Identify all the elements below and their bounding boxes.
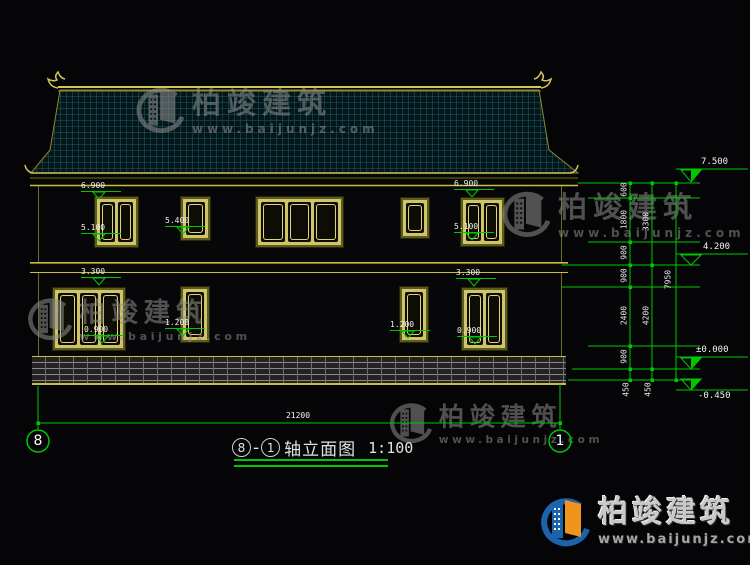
title-axis-right: 1 <box>261 438 280 457</box>
title-label: 轴立面图 <box>284 435 356 460</box>
axis-bubble-8: 8 <box>29 433 47 449</box>
elevation-marker-value: ±0.000 <box>696 345 729 355</box>
title-underline <box>234 459 388 467</box>
elevation-label: 3.300 <box>456 268 496 287</box>
elevation-label: 5.100 <box>81 223 121 242</box>
elevation-drawing-canvas: 6.9005.1005.4006.9005.1003.3000.9001.200… <box>0 0 750 565</box>
brand-logo-url: www.baijunjz.com <box>598 532 750 547</box>
dimension-label: 7950 <box>664 258 673 302</box>
elevation-label: 1.200 <box>165 318 205 337</box>
dimension-label: 4200 <box>642 294 651 338</box>
elevation-label: 0.900 <box>457 326 497 345</box>
drawing-title: 8 - 1 轴立面图 1:100 <box>232 435 413 460</box>
title-axis-left: 8 <box>232 438 251 457</box>
elevation-label: 6.900 <box>81 181 121 200</box>
dimension-label: 3300 <box>642 200 651 244</box>
dimension-label: 900 <box>620 254 629 298</box>
overall-width-dimension: 21200 <box>270 411 326 420</box>
elevation-label: 1.200 <box>390 320 430 339</box>
dimension-label: 450 <box>622 368 631 412</box>
elevation-marker-value: 4.200 <box>703 242 730 252</box>
brand-logo: 柏竣建筑 www.baijunjz.com <box>536 492 750 552</box>
axis-bubble-1: 1 <box>551 433 569 449</box>
brand-logo-icon <box>536 492 590 552</box>
elevation-label: 6.900 <box>454 179 494 198</box>
dimension-label: 450 <box>644 368 653 412</box>
elevation-marker-value: -0.450 <box>698 391 731 401</box>
brand-logo-text: 柏竣建筑 <box>598 498 750 528</box>
elevation-marker-value: 7.500 <box>701 157 728 167</box>
dimension-label: 2400 <box>620 294 629 338</box>
title-scale: 1:100 <box>368 439 413 457</box>
elevation-label: 5.400 <box>165 216 205 235</box>
elevation-label: 5.100 <box>454 222 494 241</box>
elevation-label: 3.300 <box>81 267 121 286</box>
elevation-label: 0.900 <box>84 325 124 344</box>
title-separator: - <box>253 438 259 458</box>
